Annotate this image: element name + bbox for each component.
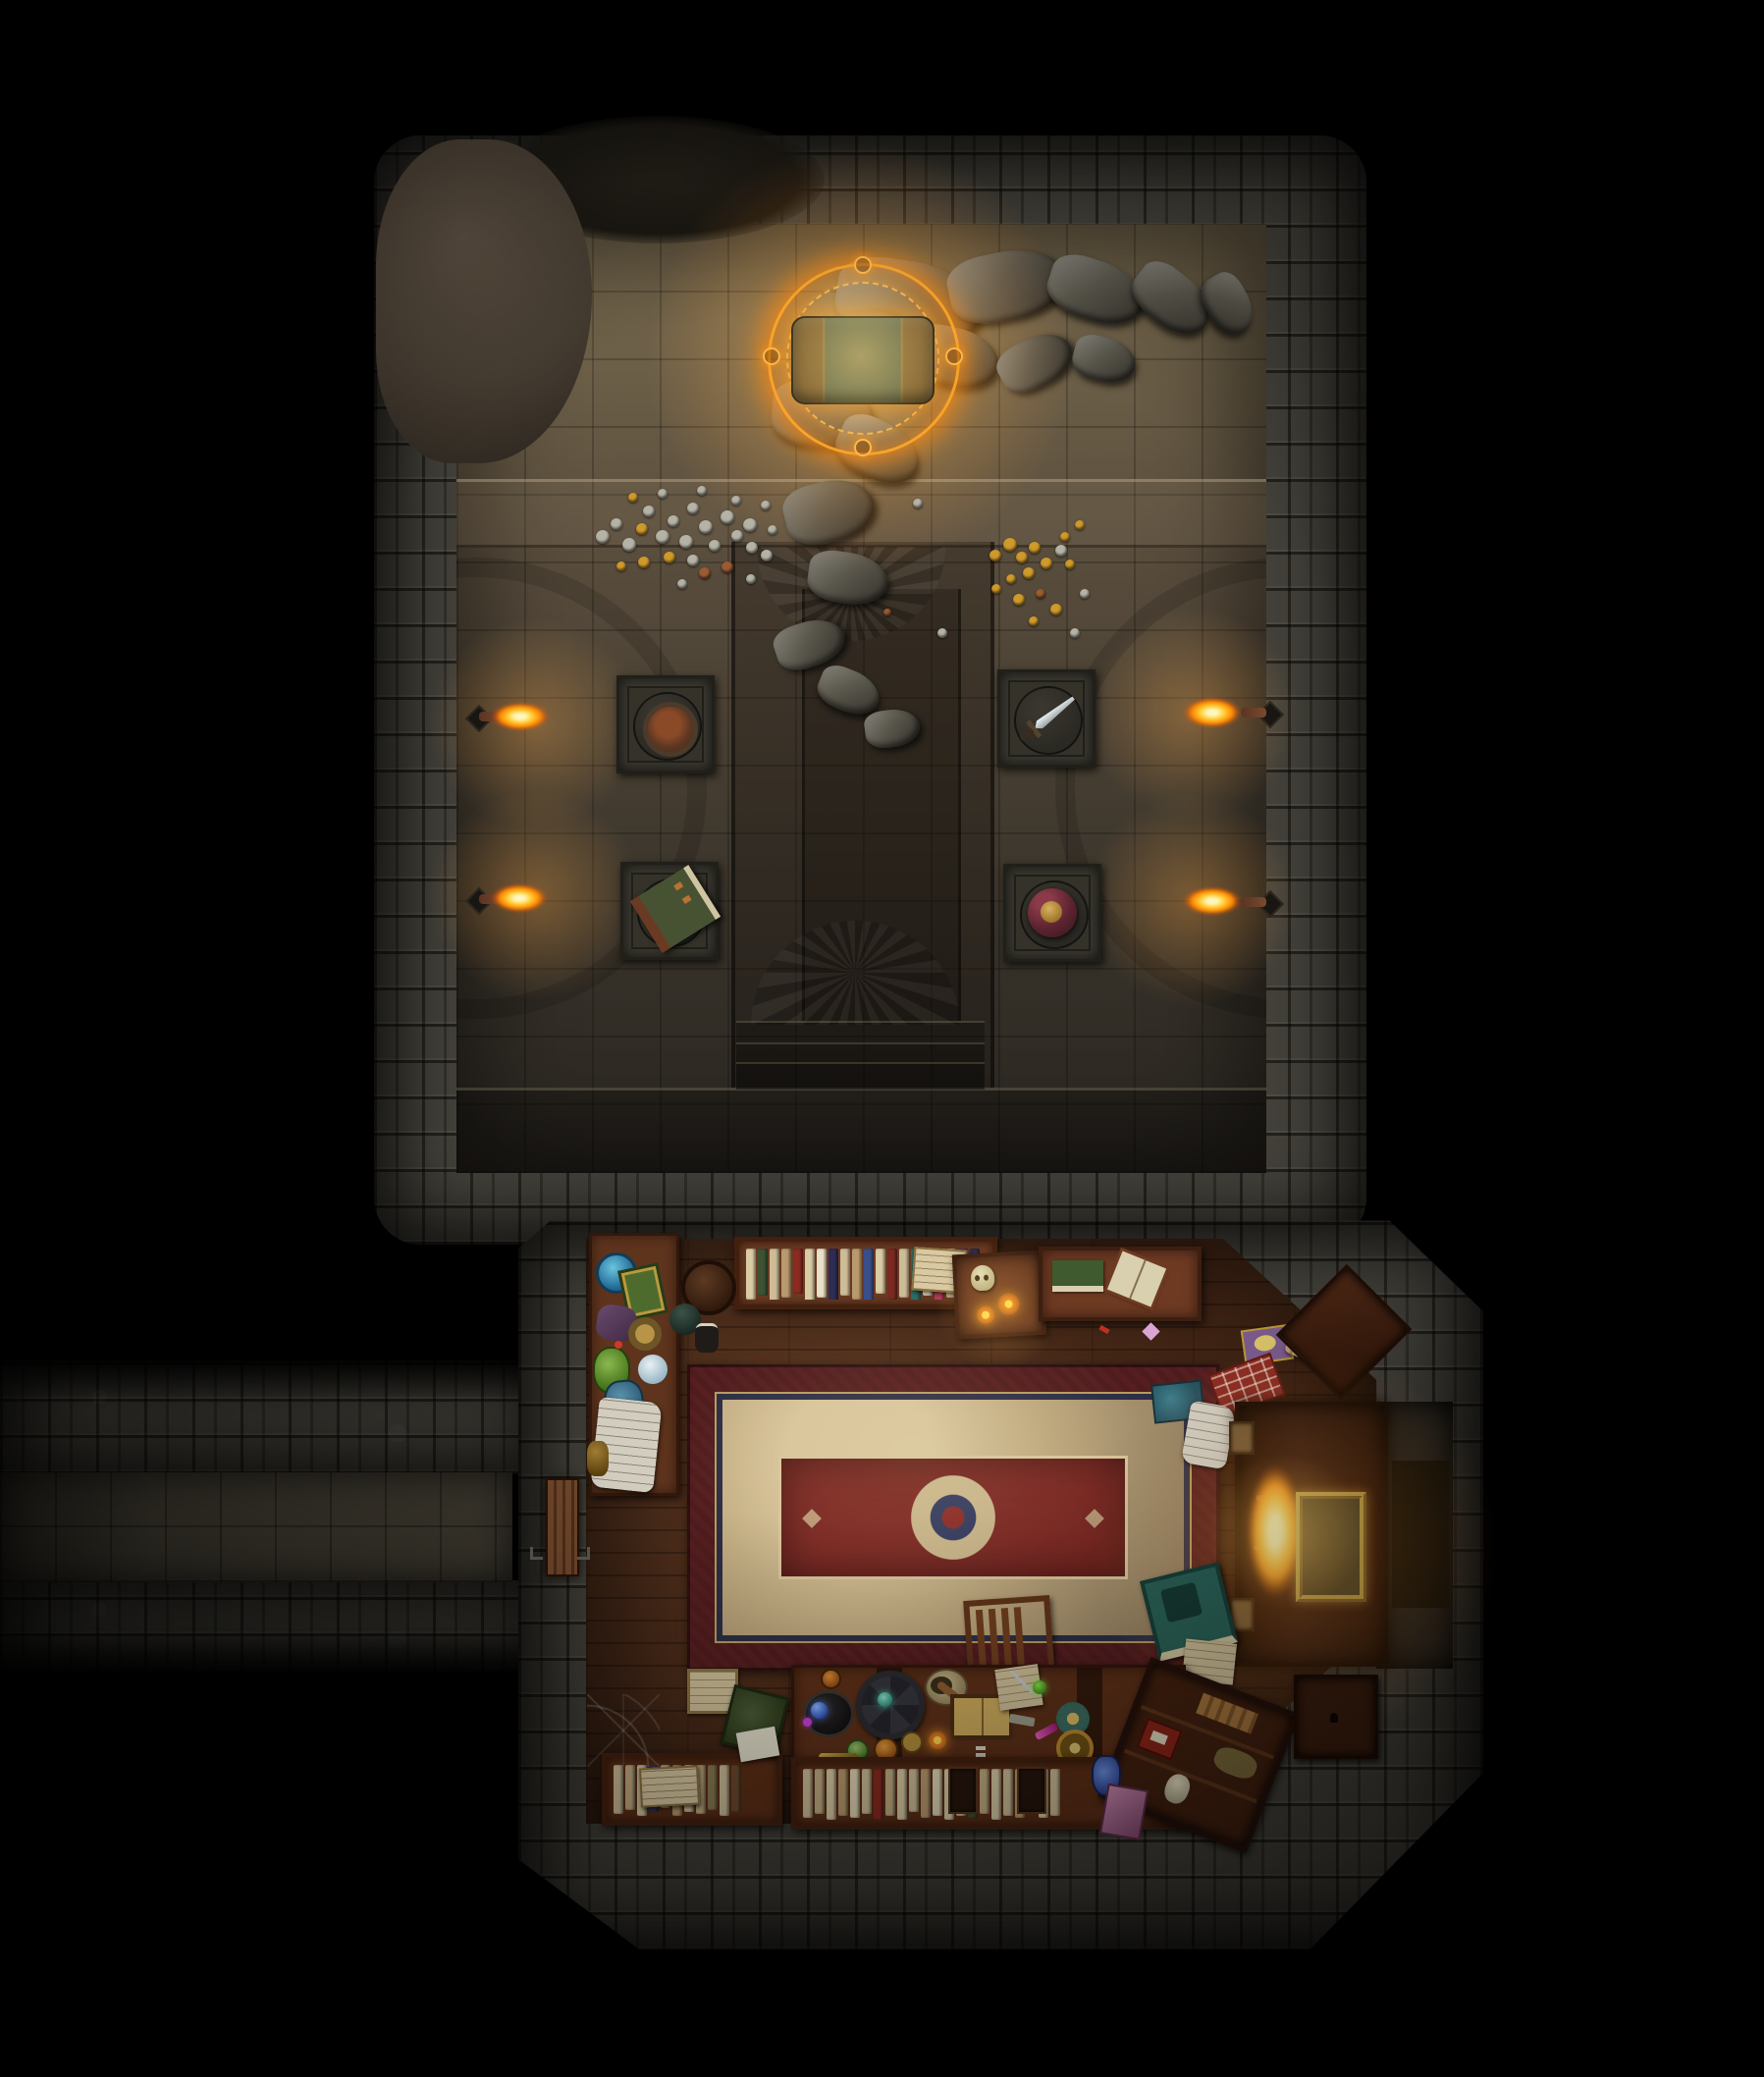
book-spine xyxy=(708,1765,718,1810)
pink-coffer xyxy=(1099,1784,1149,1841)
spellbook-emblem xyxy=(1160,1582,1203,1624)
table-candle-icon xyxy=(929,1731,946,1749)
dais-step xyxy=(736,1042,985,1064)
torch-handle xyxy=(1241,897,1266,907)
book-spine xyxy=(781,1249,791,1298)
gilded-frame xyxy=(1296,1492,1366,1602)
green-book xyxy=(1052,1260,1103,1292)
rubble-rock xyxy=(778,471,881,552)
brass-scale-plate xyxy=(628,1317,662,1351)
book-spine xyxy=(933,1769,942,1816)
pedestal-dagger xyxy=(997,669,1096,768)
door xyxy=(546,1478,579,1576)
torch-flame-icon xyxy=(491,702,550,731)
desk-clasp xyxy=(1229,1421,1255,1455)
red-box xyxy=(1137,1718,1183,1760)
book-spine xyxy=(876,1249,885,1294)
book-spine xyxy=(803,1769,813,1818)
arcane-circle-node xyxy=(763,347,780,365)
book-spine xyxy=(887,1249,897,1300)
torch-flame-icon xyxy=(491,883,548,913)
book-spine xyxy=(852,1249,862,1300)
book-spine xyxy=(909,1769,919,1812)
dais-step xyxy=(736,1062,985,1090)
dais-step xyxy=(736,1021,985,1044)
flower-sprig xyxy=(615,1341,622,1349)
corridor-top-fade xyxy=(0,1355,552,1400)
rug xyxy=(687,1364,1219,1671)
book-spine xyxy=(885,1769,895,1816)
door-hook-icon xyxy=(577,1547,590,1560)
book-spine xyxy=(862,1769,872,1814)
cobweb-icon xyxy=(587,1694,660,1767)
corridor-bottom-fade xyxy=(0,1633,552,1677)
arcane-circle-node xyxy=(945,347,963,365)
wooden-crate xyxy=(1294,1675,1378,1759)
ink-jar xyxy=(695,1323,719,1353)
book-spine xyxy=(1003,1769,1013,1816)
rug-medallion xyxy=(894,1459,1012,1576)
stored-scrolls xyxy=(1196,1693,1258,1734)
book-spine xyxy=(817,1249,827,1298)
book-spine xyxy=(770,1249,779,1300)
book-spine xyxy=(840,1249,850,1296)
book-spine xyxy=(897,1769,907,1820)
teal-gem-icon xyxy=(878,1692,892,1707)
brass-weight xyxy=(901,1731,923,1753)
hearth-recess xyxy=(1392,1461,1449,1608)
door-hook-icon xyxy=(530,1547,543,1560)
book-spine xyxy=(1050,1769,1060,1816)
candle-icon xyxy=(997,1293,1020,1315)
book-spine xyxy=(614,1765,623,1814)
altar xyxy=(791,316,935,404)
pedestal-brazier xyxy=(616,675,715,773)
purple-gem-icon xyxy=(803,1718,812,1727)
book-spine xyxy=(758,1249,768,1296)
book-spine xyxy=(731,1765,741,1812)
pedestal-orb xyxy=(1003,864,1101,962)
book-spine xyxy=(864,1249,874,1300)
crystal-orb-dish xyxy=(638,1355,668,1384)
paper-desk xyxy=(1039,1247,1202,1321)
candle-icon xyxy=(977,1305,995,1324)
temple-bottom-platform xyxy=(456,1088,1266,1173)
book-spine xyxy=(720,1765,729,1816)
torch-flame-icon xyxy=(1183,697,1242,728)
small-cup xyxy=(821,1669,841,1689)
book-spine xyxy=(827,1769,836,1820)
arcane-circle-node xyxy=(854,256,872,274)
corridor-floor xyxy=(0,1472,512,1582)
shelf-divider xyxy=(948,1767,978,1814)
blue-orb-icon xyxy=(811,1702,828,1719)
book-spine xyxy=(805,1249,815,1300)
book-spine xyxy=(793,1249,803,1294)
book-spine xyxy=(829,1249,838,1300)
pedestal-tome xyxy=(620,862,719,960)
arcane-circle-node xyxy=(854,439,872,456)
battlemap-canvas xyxy=(0,0,1764,2077)
book-spine xyxy=(838,1769,848,1816)
torch-flame-icon xyxy=(1183,886,1242,916)
open-book xyxy=(1107,1252,1166,1307)
rubble-rock xyxy=(805,548,891,610)
amber-bottle xyxy=(587,1441,609,1476)
iron-mandala-wheel xyxy=(856,1671,925,1739)
book-spine xyxy=(921,1769,931,1818)
orb-icon xyxy=(1028,888,1077,937)
brazier-icon xyxy=(643,702,698,757)
book-spine xyxy=(815,1769,825,1814)
skull-desk xyxy=(952,1251,1046,1340)
keyhole-icon xyxy=(1330,1713,1338,1723)
shelf-divider xyxy=(1017,1767,1046,1814)
book-spine xyxy=(850,1769,860,1818)
card-sigil xyxy=(1254,1334,1277,1353)
skull-icon xyxy=(970,1264,994,1291)
book-spine xyxy=(874,1769,883,1820)
green-potion-icon xyxy=(1033,1680,1046,1694)
book-spine xyxy=(991,1769,1001,1820)
book-spine xyxy=(625,1765,635,1810)
book-spine xyxy=(746,1249,756,1300)
book-spine xyxy=(899,1249,909,1298)
shelf-label-plaque xyxy=(639,1765,700,1807)
torch-handle xyxy=(1241,708,1266,718)
box-label xyxy=(1149,1731,1168,1745)
book-spine xyxy=(980,1769,989,1814)
